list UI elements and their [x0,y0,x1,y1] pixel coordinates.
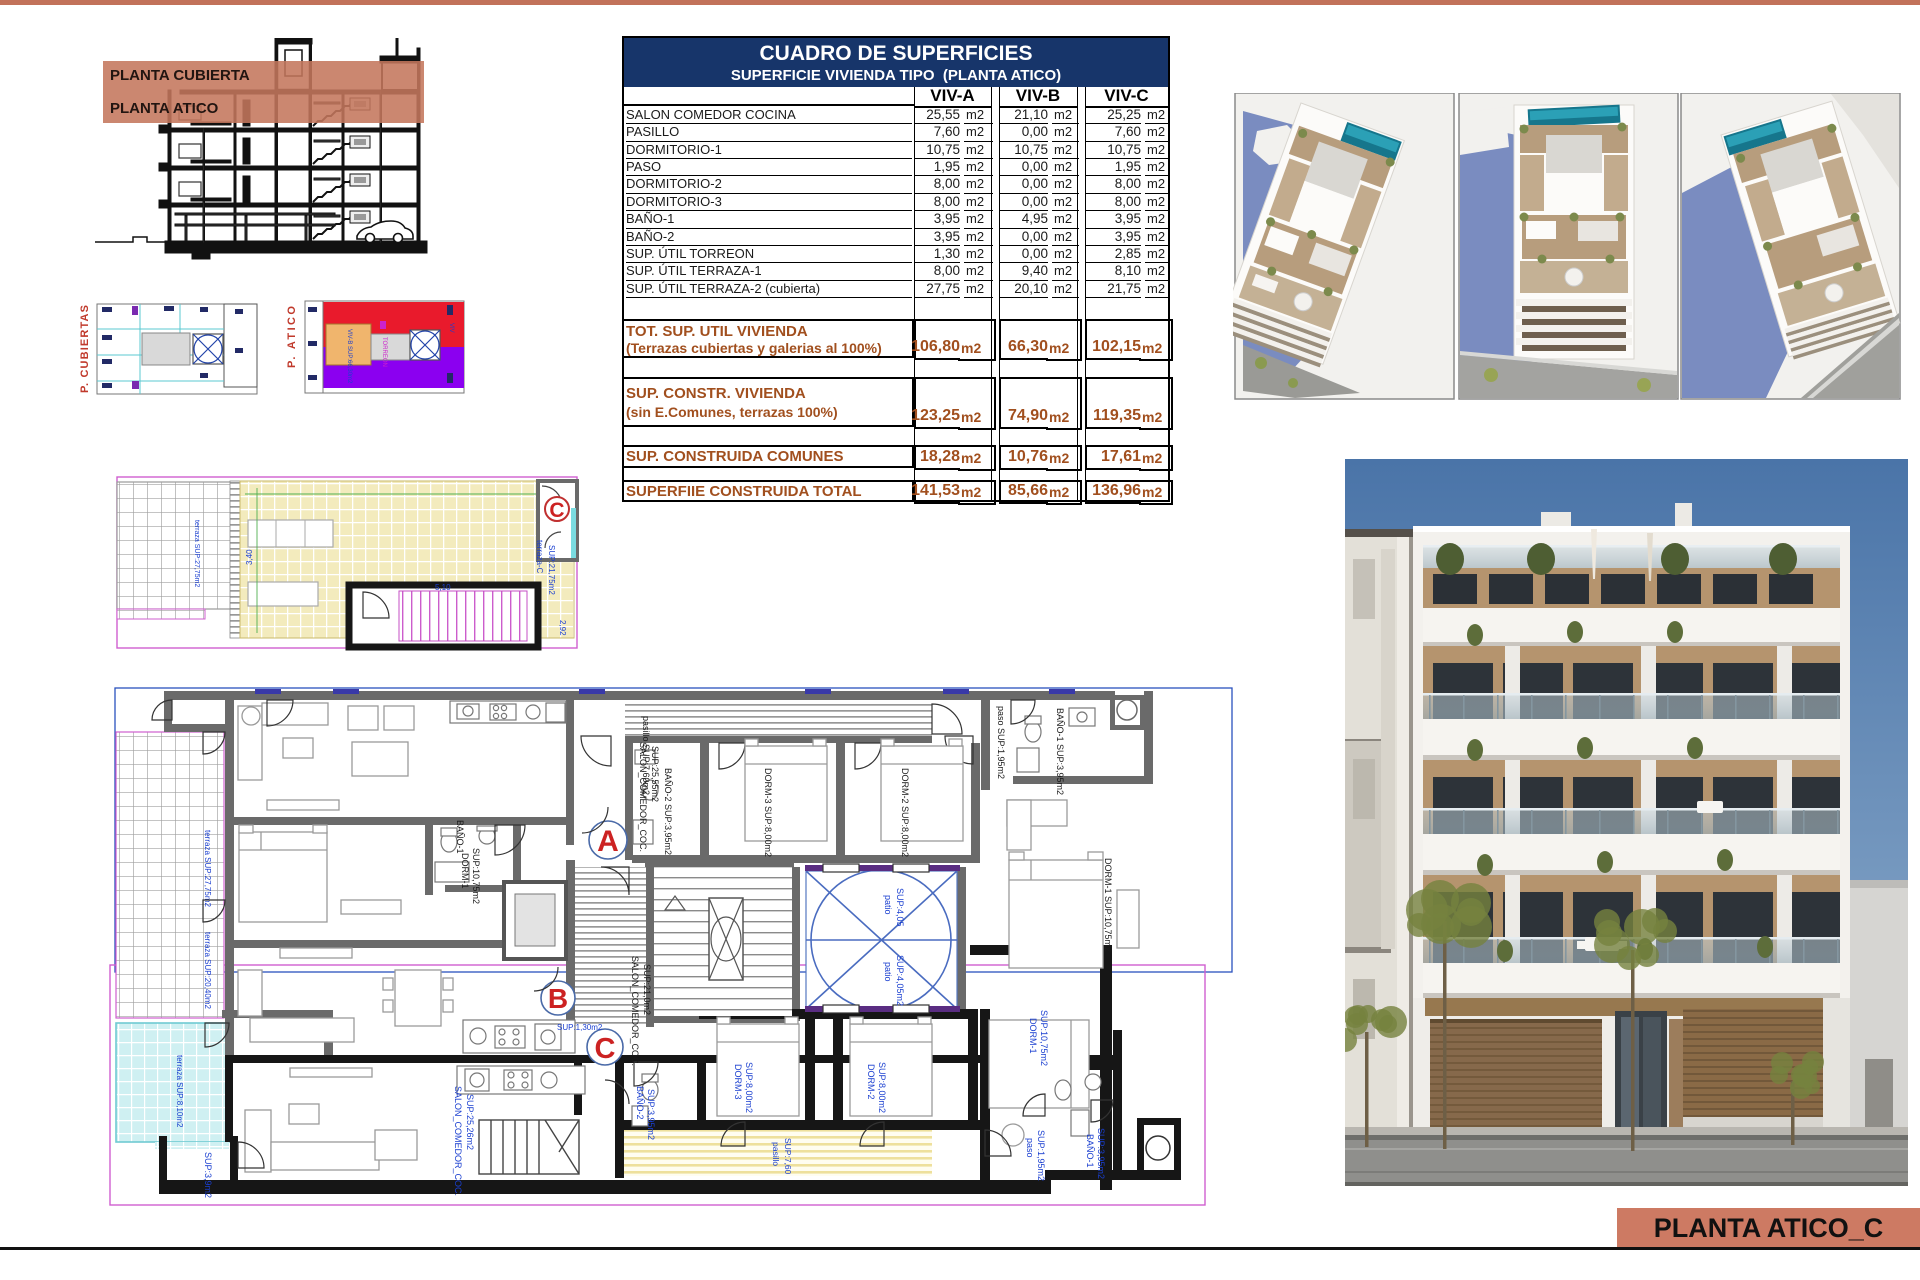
svg-text:DORM-3: DORM-3 [733,1064,743,1100]
svg-text:BAÑO-2 SUP:3,95m2: BAÑO-2 SUP:3,95m2 [663,768,673,855]
svg-text:terraza-C: terraza-C [535,540,544,574]
svg-text:BAÑO-2: BAÑO-2 [635,1086,645,1120]
svg-text:terraza SUP:8,10m2: terraza SUP:8,10m2 [175,1055,184,1128]
svg-text:PLANTA ATICO: PLANTA ATICO [110,100,219,117]
svg-text:DORM-1 SUP:10,75m2: DORM-1 SUP:10,75m2 [1103,858,1113,952]
svg-text:TORREON: TORREON [381,337,387,367]
svg-text:SUP:4,05: SUP:4,05 [895,888,905,927]
svg-text:DORM-2: DORM-2 [866,1064,876,1100]
svg-text:VIV: VIV [448,323,454,333]
svg-text:terraza SUP:27,75m2: terraza SUP:27,75m2 [203,830,212,907]
svg-text:SUP:21,0m2: SUP:21,0m2 [642,964,652,1015]
svg-text:C: C [595,1033,616,1065]
svg-text:SUP:4,05m2: SUP:4,05m2 [895,955,905,1006]
svg-text:VIV-B SUP:66,30m2: VIV-B SUP:66,30m2 [346,329,352,384]
svg-text:C: C [549,499,564,522]
svg-text:BAÑO-1: BAÑO-1 [1085,1134,1095,1168]
svg-text:DORM-3 SUP:8,00m2: DORM-3 SUP:8,00m2 [763,768,773,857]
svg-text:2,92: 2,92 [558,620,567,636]
svg-text:DORM-1: DORM-1 [1028,1018,1038,1054]
svg-text:DORM-1: DORM-1 [460,853,470,889]
svg-text:SALON_COMEDOR_COC.: SALON_COMEDOR_COC. [630,956,640,1066]
svg-text:terraza SUP:20,40m2: terraza SUP:20,40m2 [203,932,212,1009]
svg-text:P. ATICO: P. ATICO [286,306,298,368]
svg-text:SALON_COMEDOR_COC.: SALON_COMEDOR_COC. [638,742,648,852]
svg-text:3,40: 3,40 [245,549,254,565]
svg-text:P. CUBIERTAS: P. CUBIERTAS [80,305,91,393]
svg-text:paso: paso [1025,1138,1035,1158]
svg-text:SUP:7,60: SUP:7,60 [783,1138,793,1175]
svg-text:SUP:8,00m2: SUP:8,00m2 [744,1062,754,1113]
svg-text:SUP:10,75m2: SUP:10,75m2 [1039,1010,1049,1066]
svg-text:SUP:1,95m2: SUP:1,95m2 [1036,1130,1046,1181]
svg-text:SALON_COMEDOR_COC.: SALON_COMEDOR_COC. [453,1086,463,1196]
svg-text:paso SUP:1,95m2: paso SUP:1,95m2 [996,706,1006,779]
svg-text:5,10: 5,10 [435,583,451,592]
svg-text:SUP:25,26m2: SUP:25,26m2 [465,1094,475,1150]
svg-text:SUP:25,55m2: SUP:25,55m2 [650,746,660,802]
svg-text:A: A [597,825,619,858]
svg-text:SUP:10,75m2: SUP:10,75m2 [471,848,481,904]
svg-text:DORM-2 SUP:8,00m2: DORM-2 SUP:8,00m2 [900,768,910,857]
svg-text:SUP:3,95m2: SUP:3,95m2 [1096,1128,1106,1179]
svg-text:SUP:1,30m2: SUP:1,30m2 [557,1023,603,1032]
svg-text:BAÑO-1 SUP:3,95m2: BAÑO-1 SUP:3,95m2 [1055,708,1065,795]
svg-text:SUP:21,75m2: SUP:21,75m2 [547,545,556,595]
svg-text:SUP:3,95m2: SUP:3,95m2 [646,1089,656,1140]
svg-text:PLANTA CUBIERTA: PLANTA CUBIERTA [110,67,250,84]
svg-text:SUP:3,9m2: SUP:3,9m2 [203,1152,213,1198]
svg-text:patio: patio [883,895,893,915]
svg-text:SUP:8,00m2: SUP:8,00m2 [877,1062,887,1113]
svg-text:B: B [548,983,568,1014]
svg-text:patio: patio [883,962,893,982]
svg-text:terraza SUP:27,75m2: terraza SUP:27,75m2 [193,520,200,587]
svg-text:BAÑO-1: BAÑO-1 [455,820,465,854]
svg-text:pasillo: pasillo [771,1142,781,1166]
